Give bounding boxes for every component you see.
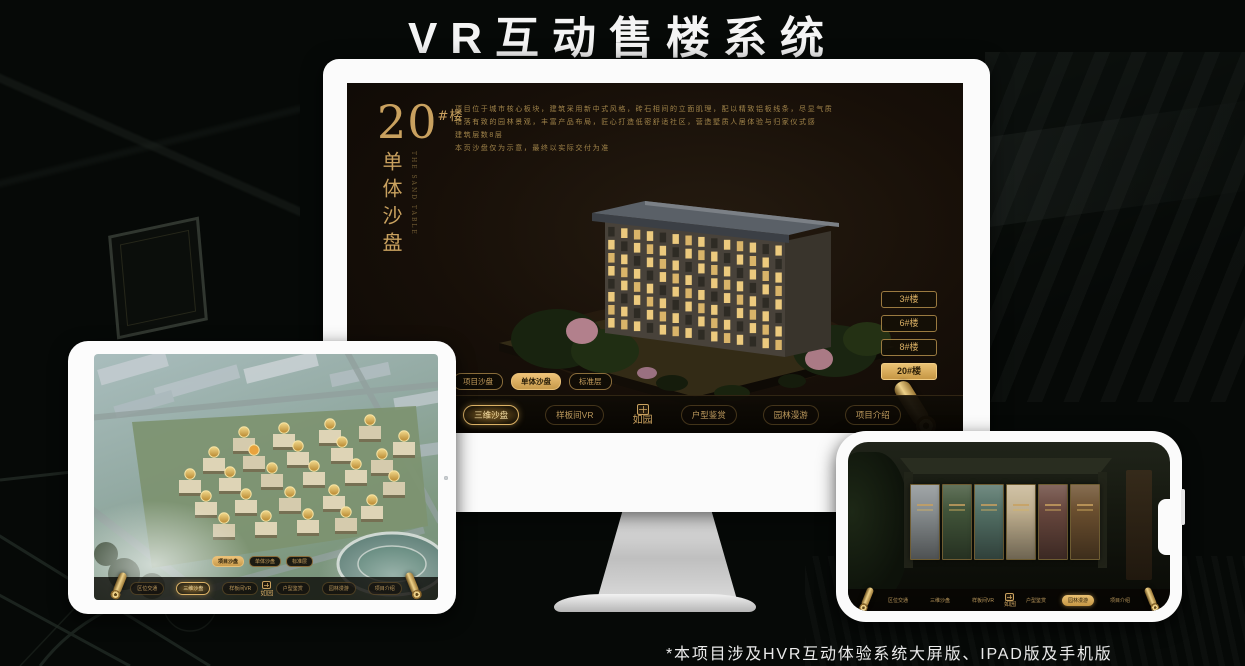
sandbox-tab[interactable]: 标准层 — [286, 556, 313, 567]
scene-gallery-panel[interactable] — [1070, 484, 1100, 560]
menu-item[interactable]: 项目介绍 — [845, 405, 901, 425]
brand-name: 如园 — [633, 416, 653, 426]
menu-item[interactable]: 户型鉴赏 — [1020, 595, 1052, 606]
menu-item[interactable]: 项目介绍 — [368, 582, 402, 595]
menu-left-group: 区位交通三维沙盘样板间VR — [882, 595, 1000, 606]
block-number: 20 — [377, 95, 438, 149]
menu-item[interactable]: 三维沙盘 — [924, 595, 956, 606]
tablet-screen: 项目沙盘单体沙盘标准层 区位交通三维沙盘样板间VR 如园 户型鉴赏园林漫游项目介… — [94, 354, 438, 600]
brand-logo: 如园 — [1004, 593, 1016, 608]
scene-gallery-panel[interactable] — [974, 484, 1004, 560]
background-road-band — [975, 101, 1245, 229]
menu-right-group: 户型鉴赏园林漫游项目介绍 — [681, 405, 901, 425]
phone-notch — [1158, 499, 1170, 555]
menu-item[interactable]: 户型鉴赏 — [276, 582, 310, 595]
scene-gallery — [910, 484, 1100, 560]
sandbox-tab[interactable]: 单体沙盘 — [511, 373, 561, 390]
tablet-device: 项目沙盘单体沙盘标准层 区位交通三维沙盘样板间VR 如园 户型鉴赏园林漫游项目介… — [68, 341, 456, 614]
scene-gallery-panel[interactable] — [942, 484, 972, 560]
menu-right-group: 户型鉴赏园林漫游项目介绍 — [276, 582, 402, 595]
menu-item[interactable]: 园林漫游 — [322, 582, 356, 595]
scene-foliage — [848, 452, 908, 602]
menu-left-group: 区位交通三维沙盘样板间VR — [130, 582, 258, 595]
phone-device: 区位交通三维沙盘样板间VR 如园 户型鉴赏园林漫游项目介绍 — [836, 431, 1182, 622]
background-roads-top-left — [0, 60, 300, 230]
background-picture-frame — [108, 217, 208, 340]
brand-logo: 如园 — [633, 404, 653, 426]
menu-right-group: 户型鉴赏园林漫游项目介绍 — [1020, 595, 1136, 606]
menu-item[interactable]: 样板间VR — [545, 405, 604, 425]
block-title: 20#楼 单体沙盘 THE SAND TABLE — [377, 99, 463, 259]
sandbox-tab[interactable]: 项目沙盘 — [453, 373, 503, 390]
menu-item[interactable]: 样板间VR — [966, 595, 1000, 606]
menu-item[interactable]: 园林漫游 — [763, 405, 819, 425]
phone-screen: 区位交通三维沙盘样板间VR 如园 户型鉴赏园林漫游项目介绍 — [848, 442, 1170, 611]
building-description: 项目位于城市核心板块，建筑采用新中式风格，砖石相间的立面肌理，配以精致铝板线条，… — [455, 103, 885, 155]
scene-gate-beam — [900, 458, 1112, 474]
phone-menu-bar: 区位交通三维沙盘样板间VR 如园 户型鉴赏园林漫游项目介绍 — [848, 589, 1170, 611]
floor-button-group: 3#楼6#楼8#楼20#楼 — [881, 291, 937, 380]
sandbox-tabs: 项目沙盘单体沙盘标准层 — [453, 373, 612, 390]
menu-item[interactable]: 项目介绍 — [1104, 595, 1136, 606]
menu-item[interactable]: 样板间VR — [222, 582, 258, 595]
brand-logo: 如园 — [260, 581, 273, 597]
sandbox-tab[interactable]: 项目沙盘 — [212, 556, 244, 567]
brand-name: 如园 — [1004, 602, 1016, 608]
footnote: *本项目涉及HVR互动体验系统大屏版、IPAD版及手机版 — [666, 640, 1113, 664]
brand-seal-icon — [1005, 593, 1014, 601]
menu-item[interactable]: 区位交通 — [130, 582, 164, 595]
background-buildings-right — [985, 52, 1245, 402]
description-line: 项目位于城市核心板块，建筑采用新中式风格，砖石相间的立面肌理，配以精致铝板线条，… — [455, 103, 885, 116]
menu-item[interactable]: 园林漫游 — [1062, 595, 1094, 606]
monitor-stand-base — [554, 594, 756, 612]
floor-button[interactable]: 8#楼 — [881, 339, 937, 356]
tablet-sandbox-tabs: 项目沙盘单体沙盘标准层 — [212, 556, 313, 567]
page-title: VR互动售楼系统 — [0, 2, 1245, 66]
brand-seal-icon — [262, 581, 271, 589]
description-line: 建筑层数8层 — [455, 129, 885, 142]
floor-button[interactable]: 3#楼 — [881, 291, 937, 308]
description-line: 错落有致的园林景观，丰富产品布局，匠心打造低密舒适社区，营造墅质人居体验与归家仪… — [455, 116, 885, 129]
block-subtitle-en: THE SAND TABLE — [410, 151, 417, 259]
menu-item[interactable]: 区位交通 — [882, 595, 914, 606]
brand-seal-icon — [637, 404, 649, 415]
scene-doorway — [1126, 470, 1152, 580]
sandbox-tab[interactable]: 标准层 — [569, 373, 612, 390]
menu-item[interactable]: 户型鉴赏 — [681, 405, 737, 425]
block-subtitle: 单体沙盘 — [377, 151, 406, 259]
scene-gallery-panel[interactable] — [1038, 484, 1068, 560]
monitor-stand-neck — [588, 510, 746, 598]
phone-side-button — [1181, 489, 1185, 525]
sandbox-tab[interactable]: 单体沙盘 — [249, 556, 281, 567]
tablet-menu-bar: 区位交通三维沙盘样板间VR 如园 户型鉴赏园林漫游项目介绍 — [94, 577, 438, 600]
floor-button[interactable]: 6#楼 — [881, 315, 937, 332]
menu-item[interactable]: 三维沙盘 — [176, 582, 210, 595]
tablet-camera-icon — [444, 476, 448, 480]
scene-gallery-panel[interactable] — [1006, 484, 1036, 560]
brand-name: 如园 — [260, 590, 273, 597]
menu-item[interactable]: 三维沙盘 — [463, 405, 519, 425]
floor-button[interactable]: 20#楼 — [881, 363, 937, 380]
scene-gallery-panel[interactable] — [910, 484, 940, 560]
